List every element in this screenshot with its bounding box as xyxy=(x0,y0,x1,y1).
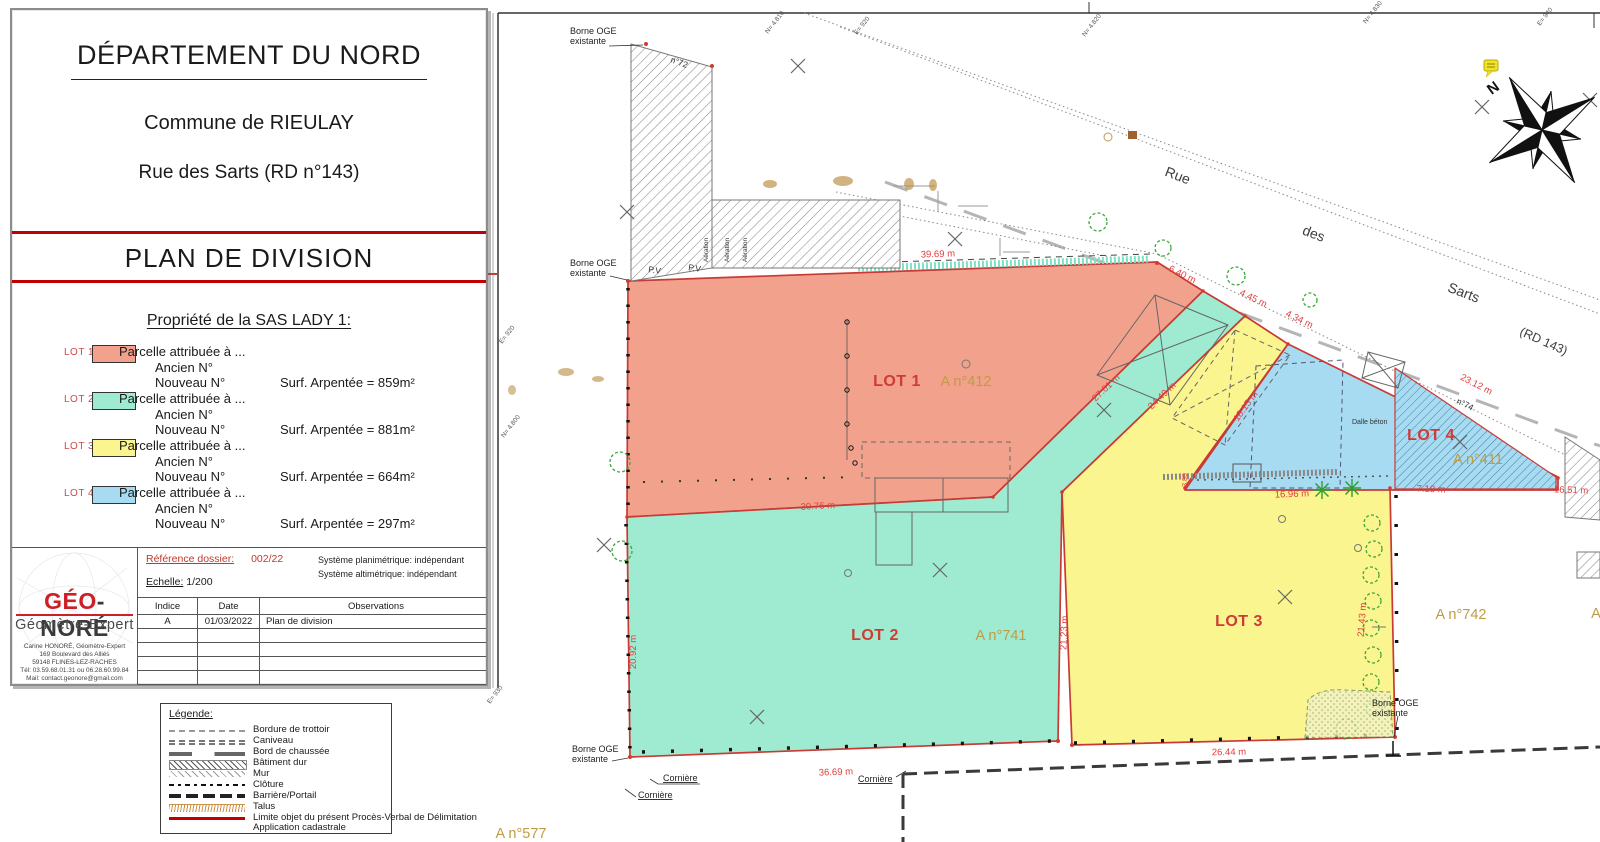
lot3-line3: Nouveau N° xyxy=(119,469,245,485)
corniere-label: Cornière xyxy=(638,790,673,800)
red-rule-bottom xyxy=(12,280,486,283)
lot4-surface: Surf. Arpentée = 297m² xyxy=(280,516,415,531)
parcel-a411: A n°411 xyxy=(1453,452,1503,468)
measurement-label: 16.51 m xyxy=(1554,484,1589,496)
lot4-line2: Ancien N° xyxy=(119,501,245,517)
lot1-legend-entry: LOT 1 Parcelle attribuée à ... Ancien N°… xyxy=(12,344,486,391)
dalle-beton-label: Dalle béton xyxy=(1352,419,1388,426)
legend-item: Bordure de trottoir xyxy=(161,724,391,735)
north-arrow xyxy=(1457,45,1600,216)
address-line: Tél: 03.59.68.01.31 ou 06.28.60.99.84 xyxy=(12,667,137,675)
measurement-label: 36.69 m xyxy=(819,766,854,778)
aeration-label: Aération xyxy=(724,238,731,263)
borne-label: Borne OGE xyxy=(1372,698,1419,708)
borne-label: Borne OGE xyxy=(570,258,617,268)
scale-line: Echelle: 1/200 xyxy=(146,576,213,588)
lot1-surface: Surf. Arpentée = 859m² xyxy=(280,375,415,390)
measurement-label: 26.44 m xyxy=(1212,747,1247,759)
property-heading: Propriété de la SAS LADY 1: xyxy=(12,312,486,330)
legend-label: Application cadastrale xyxy=(253,822,346,833)
corniere-label: Cornière xyxy=(663,773,698,783)
legend-item: Application cadastrale xyxy=(161,822,391,833)
legend-label: Bord de chaussée xyxy=(253,746,330,757)
lot3-line1: Parcelle attribuée à ... xyxy=(119,438,245,454)
coord-label: E= 940 xyxy=(1536,6,1555,27)
scale-label: Echelle: xyxy=(146,576,183,588)
lot3-surface: Surf. Arpentée = 664m² xyxy=(280,469,415,484)
borne-label: Borne OGE xyxy=(570,26,617,36)
legend-item: Bâtiment dur xyxy=(161,757,391,768)
lot4-lines: Parcelle attribuée à ... Ancien N° Nouve… xyxy=(119,485,245,532)
header-date: Date xyxy=(198,598,260,615)
logo-red-rule xyxy=(16,614,133,616)
pv-label: P.V xyxy=(648,264,662,276)
firm-reference-block: Référence dossier: 002/22 Echelle: 1/200… xyxy=(138,548,486,685)
road-word-rd143: (RD 143) xyxy=(1518,325,1570,358)
sys-altimetrique: Système altimétrique: indépendant xyxy=(318,569,457,579)
aeration-label: Aération xyxy=(703,238,710,263)
reference-dossier: Référence dossier: 002/22 xyxy=(146,553,283,565)
road-word-sarts: Sarts xyxy=(1446,279,1482,306)
building-low xyxy=(712,200,900,268)
lot1-line1: Parcelle attribuée à ... xyxy=(119,344,245,360)
lot4-legend-entry: LOT 4 Parcelle attribuée à ... Ancien N°… xyxy=(12,485,486,532)
header-indice: Indice xyxy=(138,598,198,615)
borne-label: existante xyxy=(570,268,606,278)
legend-title: Légende: xyxy=(169,708,213,720)
corniere-label: Cornière xyxy=(858,774,893,784)
legend-label: Talus xyxy=(253,801,275,812)
borne-label: existante xyxy=(570,36,606,46)
lot1-label: LOT 1 xyxy=(873,373,921,390)
address-line: 59148 FLINES-LEZ-RACHES xyxy=(12,659,137,667)
legend-item: Mur xyxy=(161,768,391,779)
legend-label: Mur xyxy=(253,768,269,779)
coord-label: E= 920 xyxy=(853,15,872,36)
legend-item: Barrière/Portail xyxy=(161,790,391,801)
parcel-a742: A n°742 xyxy=(1436,607,1487,623)
lot2-label: LOT 2 xyxy=(851,627,899,644)
lot2-line1: Parcelle attribuée à ... xyxy=(119,391,245,407)
lot3-id: LOT 3 xyxy=(64,441,94,452)
borne-label: existante xyxy=(1372,708,1408,718)
table-row-empty xyxy=(138,643,486,657)
firm-address: Carine HONORÉ, Géomètre-Expert 169 Boule… xyxy=(12,643,137,683)
lot3-label: LOT 3 xyxy=(1215,613,1263,630)
cell-date: 01/03/2022 xyxy=(198,615,260,629)
table-row-empty xyxy=(138,671,486,685)
lot1-lines: Parcelle attribuée à ... Ancien N° Nouve… xyxy=(119,344,245,391)
reference-label: Référence dossier: xyxy=(146,553,234,565)
table-row-empty xyxy=(138,657,486,671)
legend-item: Clôture xyxy=(161,779,391,790)
parcel-a741: A n°741 xyxy=(976,628,1027,644)
measurement-label: 3.85 xyxy=(1182,473,1189,487)
table-row: A 01/03/2022 Plan de division xyxy=(138,615,486,629)
sys-planimetrique: Système planimétrique: indépendant xyxy=(318,555,464,565)
firm-section: GÉO-NORÉ Géomètre-Expert Carine HONORÉ, … xyxy=(12,547,486,685)
cell-observations: Plan de division xyxy=(260,615,486,629)
talus-symbol xyxy=(169,804,245,812)
north-label: N xyxy=(1484,78,1503,98)
lot4-line3: Nouveau N° xyxy=(119,516,245,532)
legend-box: Légende: Bordure de trottoir Caniveau Bo… xyxy=(160,703,392,834)
plan-de-division-page: N 39.69 m 6.40 m 4.45 m 4.34 m 23.12 m 2… xyxy=(0,0,1600,842)
parcel-a-partial: A xyxy=(1591,606,1600,622)
parcel-a412: A n°412 xyxy=(941,374,992,390)
lot2-line2: Ancien N° xyxy=(119,407,245,423)
measurement-label: 7.18 m xyxy=(1416,483,1445,495)
legend-label: Clôture xyxy=(253,779,284,790)
legend-label: Bâtiment dur xyxy=(253,757,307,768)
commune-subtitle: Commune de RIEULAY xyxy=(12,112,486,135)
coord-label: E= 930 xyxy=(486,684,505,705)
barriere-symbol xyxy=(169,794,245,798)
trottoir-symbol xyxy=(169,730,245,732)
measurement-label: 16.96 m xyxy=(1275,488,1310,500)
caniveau-symbol xyxy=(169,740,245,745)
lot4-id: LOT 4 xyxy=(64,488,94,499)
firm-logo-subtitle: Géomètre-Expert xyxy=(12,617,137,633)
chaussee-symbol xyxy=(169,752,245,756)
department-title: DÉPARTEMENT DU NORD xyxy=(12,40,486,80)
measurement-label: 21.23 m xyxy=(1058,615,1070,650)
borne-label: Borne OGE xyxy=(572,744,619,754)
lot1-line2: Ancien N° xyxy=(119,360,245,376)
lot4-line1: Parcelle attribuée à ... xyxy=(119,485,245,501)
lot1-id: LOT 1 xyxy=(64,347,94,358)
table-header-row: Indice Date Observations xyxy=(138,598,486,615)
north-sticker-icon xyxy=(1484,60,1498,77)
lot4-label: LOT 4 xyxy=(1407,427,1455,444)
title-block: DÉPARTEMENT DU NORD Commune de RIEULAY R… xyxy=(10,8,488,686)
mur-symbol xyxy=(169,771,245,777)
building-n72 xyxy=(631,44,712,281)
cloture-symbol xyxy=(169,784,245,786)
bottom-barrier xyxy=(903,747,1600,842)
coord-label: N= 4.820 xyxy=(1081,13,1103,39)
measurement-label: 4.45 m xyxy=(1238,287,1269,310)
aeration-label: Aération xyxy=(742,238,749,263)
legend-label: Bordure de trottoir xyxy=(253,724,330,735)
plan-title: PLAN DE DIVISION xyxy=(12,243,486,274)
firm-logo-block: GÉO-NORÉ Géomètre-Expert Carine HONORÉ, … xyxy=(12,548,138,685)
lot3-line2: Ancien N° xyxy=(119,454,245,470)
pv-label: P.V xyxy=(688,262,702,274)
road-word-rue: Rue xyxy=(1163,163,1193,187)
lot2-line3: Nouveau N° xyxy=(119,422,245,438)
reference-value: 002/22 xyxy=(251,553,283,565)
cell-indice: A xyxy=(138,615,198,629)
limite-pv-symbol xyxy=(169,817,245,820)
legend-item: Talus xyxy=(161,801,391,812)
lot2-surface: Surf. Arpentée = 881m² xyxy=(280,422,415,437)
borne-label: existante xyxy=(572,754,608,764)
measurement-label: 23.12 m xyxy=(1458,372,1494,397)
logo-geo: GÉO xyxy=(44,588,97,614)
road-word-des: des xyxy=(1300,222,1327,245)
measurement-label: 20.92 m xyxy=(628,635,639,669)
lot2-lines: Parcelle attribuée à ... Ancien N° Nouve… xyxy=(119,391,245,438)
scale-value: 1/200 xyxy=(186,576,212,588)
legend-item: Bord de chaussée xyxy=(161,746,391,757)
coord-label: N= 4.800 xyxy=(500,414,522,440)
red-rule-top xyxy=(12,231,486,234)
coord-label: E= 920 xyxy=(498,324,517,345)
measurement-label: 4.34 m xyxy=(1284,308,1315,331)
legend-label: Caniveau xyxy=(253,735,293,746)
address-line: 169 Boulevard des Alliés xyxy=(12,651,137,659)
street-subtitle: Rue des Sarts (RD n°143) xyxy=(12,162,486,184)
lot1-line3: Nouveau N° xyxy=(119,375,245,391)
lot2-legend-entry: LOT 2 Parcelle attribuée à ... Ancien N°… xyxy=(12,391,486,438)
legend-label: Barrière/Portail xyxy=(253,790,316,801)
lot2-id: LOT 2 xyxy=(64,394,94,405)
far-right-building xyxy=(1565,437,1600,520)
address-line: Carine HONORÉ, Géomètre-Expert xyxy=(12,643,137,651)
lot3-legend-entry: LOT 3 Parcelle attribuée à ... Ancien N°… xyxy=(12,438,486,485)
measurement-label: 39.69 m xyxy=(921,248,956,260)
table-row-empty xyxy=(138,629,486,643)
measurement-label: 30.76 m xyxy=(800,500,835,513)
legend-item: Caniveau xyxy=(161,735,391,746)
lot3-lines: Parcelle attribuée à ... Ancien N° Nouve… xyxy=(119,438,245,485)
header-observations: Observations xyxy=(260,598,486,615)
parcel-a577: A n°577 xyxy=(496,826,547,842)
far-right-hatch2 xyxy=(1577,552,1600,578)
revisions-table: Indice Date Observations A 01/03/2022 Pl… xyxy=(138,597,486,686)
address-line: Mail: contact.geonore@gmail.com xyxy=(12,675,137,683)
lot-polygons xyxy=(627,262,1558,757)
